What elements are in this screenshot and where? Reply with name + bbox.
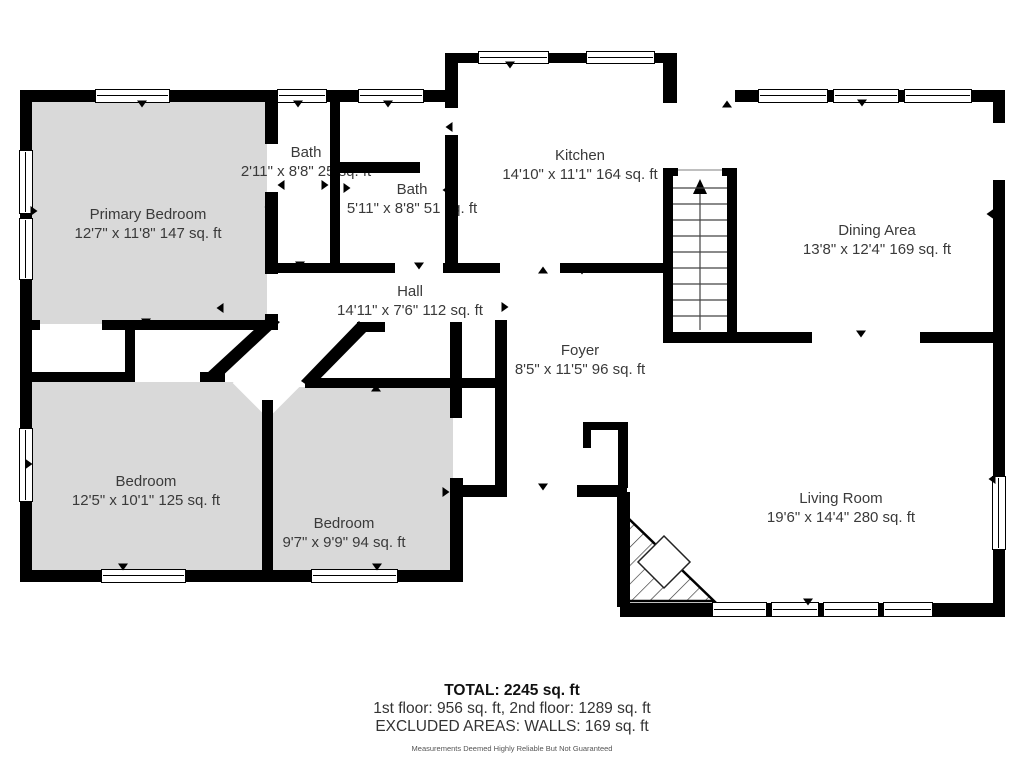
room-dims: 13'8" x 12'4" 169 sq. ft xyxy=(803,240,951,259)
wall-segment xyxy=(920,332,1005,343)
room-label-foyer: Foyer 8'5" x 11'5" 96 sq. ft xyxy=(515,341,645,379)
room-dims: 12'5" x 10'1" 125 sq. ft xyxy=(72,491,220,510)
room-name: Kitchen xyxy=(502,146,657,165)
excluded-areas: EXCLUDED AREAS: WALLS: 169 sq. ft xyxy=(0,718,1024,736)
wall-segment xyxy=(357,322,385,332)
door-swing-arrow xyxy=(577,268,587,275)
wall-segment xyxy=(20,320,40,330)
total-area: TOTAL: 2245 sq. ft xyxy=(0,681,1024,700)
stairs-up-arrow xyxy=(693,179,707,194)
wall-segment xyxy=(330,98,340,272)
room-label-primary-bedroom: Primary Bedroom 12'7" x 11'8" 147 sq. ft xyxy=(74,205,221,243)
door-swing-arrow xyxy=(987,209,994,219)
wall-segment xyxy=(618,422,628,488)
window xyxy=(992,476,1006,550)
room-dims: 19'6" x 14'4" 280 sq. ft xyxy=(767,508,915,527)
window xyxy=(19,218,33,280)
door-swing-arrow xyxy=(217,303,224,313)
room-dims: 14'10" x 11'1" 164 sq. ft xyxy=(502,165,657,184)
room-name: Foyer xyxy=(515,341,645,360)
window xyxy=(883,602,933,617)
room-name: Dining Area xyxy=(803,221,951,240)
door-swing-arrow xyxy=(383,101,393,108)
window xyxy=(311,569,398,583)
wall-segment xyxy=(262,400,273,570)
floor-areas: 1st floor: 956 sq. ft, 2nd floor: 1289 s… xyxy=(0,700,1024,718)
room-label-bedroom-1: Bedroom 12'5" x 10'1" 125 sq. ft xyxy=(72,472,220,510)
window xyxy=(823,602,879,617)
wall-segment xyxy=(993,180,1005,333)
room-label-living-room: Living Room 19'6" x 14'4" 280 sq. ft xyxy=(767,489,915,527)
door-swing-arrow xyxy=(278,180,285,190)
wall-segment xyxy=(663,332,812,343)
room-dims: 14'11" x 7'6" 112 sq. ft xyxy=(337,301,483,320)
wall-segment xyxy=(583,422,591,448)
room-label-hall: Hall 14'11" x 7'6" 112 sq. ft xyxy=(337,282,483,320)
wall-segment xyxy=(102,320,273,330)
wall-segment xyxy=(663,168,673,332)
summary-footer: TOTAL: 2245 sq. ft 1st floor: 956 sq. ft… xyxy=(0,681,1024,754)
window xyxy=(712,602,767,617)
window xyxy=(19,150,33,214)
room-name: Primary Bedroom xyxy=(74,205,221,224)
door-swing-arrow xyxy=(293,101,303,108)
door-swing-arrow xyxy=(989,474,996,484)
door-swing-arrow xyxy=(141,319,151,326)
wall-segment xyxy=(305,378,507,388)
wall-segment xyxy=(337,162,420,173)
room-dims: 12'7" x 11'8" 147 sq. ft xyxy=(74,224,221,243)
floor-plan: Primary Bedroom 12'7" x 11'8" 147 sq. ft… xyxy=(0,0,1024,768)
door-swing-arrow xyxy=(322,180,329,190)
room-name: Bath xyxy=(241,143,371,162)
wall-segment xyxy=(727,168,737,332)
door-swing-arrow xyxy=(722,101,732,108)
wall-segment xyxy=(450,322,462,418)
door-swing-arrow xyxy=(371,385,381,392)
room-name: Bedroom xyxy=(72,472,220,491)
door-swing-arrow xyxy=(505,62,515,69)
room-name: Hall xyxy=(337,282,483,301)
door-swing-arrow xyxy=(803,599,813,606)
wall-segment xyxy=(265,263,395,273)
wall-segment xyxy=(30,372,133,382)
wall-segment xyxy=(265,98,278,144)
wall-segment xyxy=(200,372,225,382)
door-swing-arrow xyxy=(344,183,351,193)
room-name: Living Room xyxy=(767,489,915,508)
door-swing-arrow xyxy=(31,206,38,216)
door-swing-arrow xyxy=(538,267,548,274)
door-swing-arrow xyxy=(295,262,305,269)
wall-segment xyxy=(722,168,737,176)
room-dims: 9'7" x 9'9" 94 sq. ft xyxy=(282,533,405,552)
door-swing-arrow xyxy=(137,101,147,108)
door-swing-arrow xyxy=(118,564,128,571)
door-swing-arrow xyxy=(443,487,450,497)
wall-segment xyxy=(663,53,677,103)
door-swing-arrow xyxy=(857,100,867,107)
door-swing-arrow xyxy=(538,484,548,491)
door-swing-arrow xyxy=(26,459,33,469)
room-label-bedroom-2: Bedroom 9'7" x 9'9" 94 sq. ft xyxy=(282,514,405,552)
wall-segment xyxy=(617,492,630,607)
staircase xyxy=(673,170,727,330)
wall-segment xyxy=(495,320,507,487)
wall-segment xyxy=(445,135,458,265)
room-label-dining-area: Dining Area 13'8" x 12'4" 169 sq. ft xyxy=(803,221,951,259)
disclaimer: Measurements Deemed Highly Reliable But … xyxy=(0,744,1024,754)
window xyxy=(101,569,186,583)
room-label-kitchen: Kitchen 14'10" x 11'1" 164 sq. ft xyxy=(502,146,657,184)
room-name: Bedroom xyxy=(282,514,405,533)
window xyxy=(904,89,972,103)
door-swing-arrow xyxy=(372,564,382,571)
door-swing-arrow xyxy=(265,202,272,212)
window xyxy=(758,89,828,103)
wall-segment xyxy=(663,168,678,176)
room-dims: 8'5" x 11'5" 96 sq. ft xyxy=(515,360,645,379)
window xyxy=(95,89,170,103)
wall-segment xyxy=(993,90,1005,123)
door-swing-arrow xyxy=(414,263,424,270)
door-swing-arrow xyxy=(443,185,450,195)
window xyxy=(586,51,655,64)
corner-hatch xyxy=(628,518,714,601)
door-swing-arrow xyxy=(446,122,453,132)
door-swing-arrow xyxy=(502,302,509,312)
door-swing-arrow xyxy=(856,331,866,338)
